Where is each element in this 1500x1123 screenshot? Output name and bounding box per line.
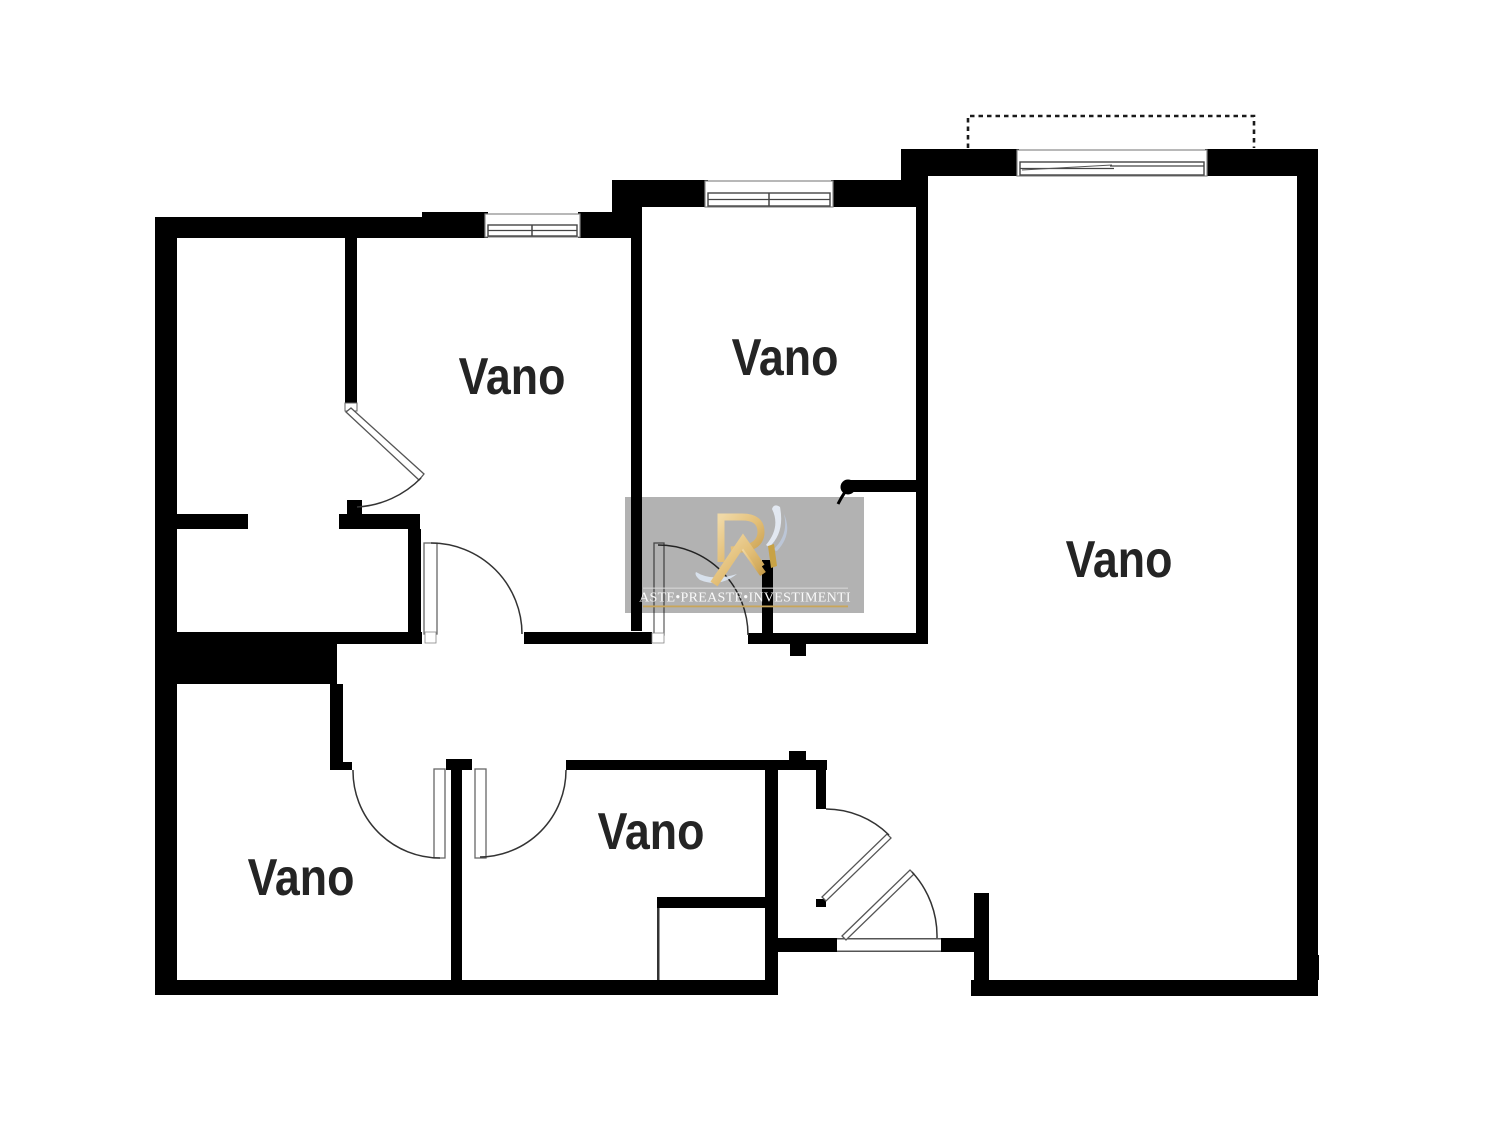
- svg-text:ASTE•PREASTE•INVESTIMENTI: ASTE•PREASTE•INVESTIMENTI: [639, 591, 851, 606]
- svg-text:Vano: Vano: [598, 803, 705, 861]
- svg-text:Vano: Vano: [459, 348, 566, 406]
- svg-text:Vano: Vano: [732, 329, 839, 387]
- svg-text:Vano: Vano: [1066, 531, 1173, 589]
- svg-text:Vano: Vano: [248, 849, 355, 907]
